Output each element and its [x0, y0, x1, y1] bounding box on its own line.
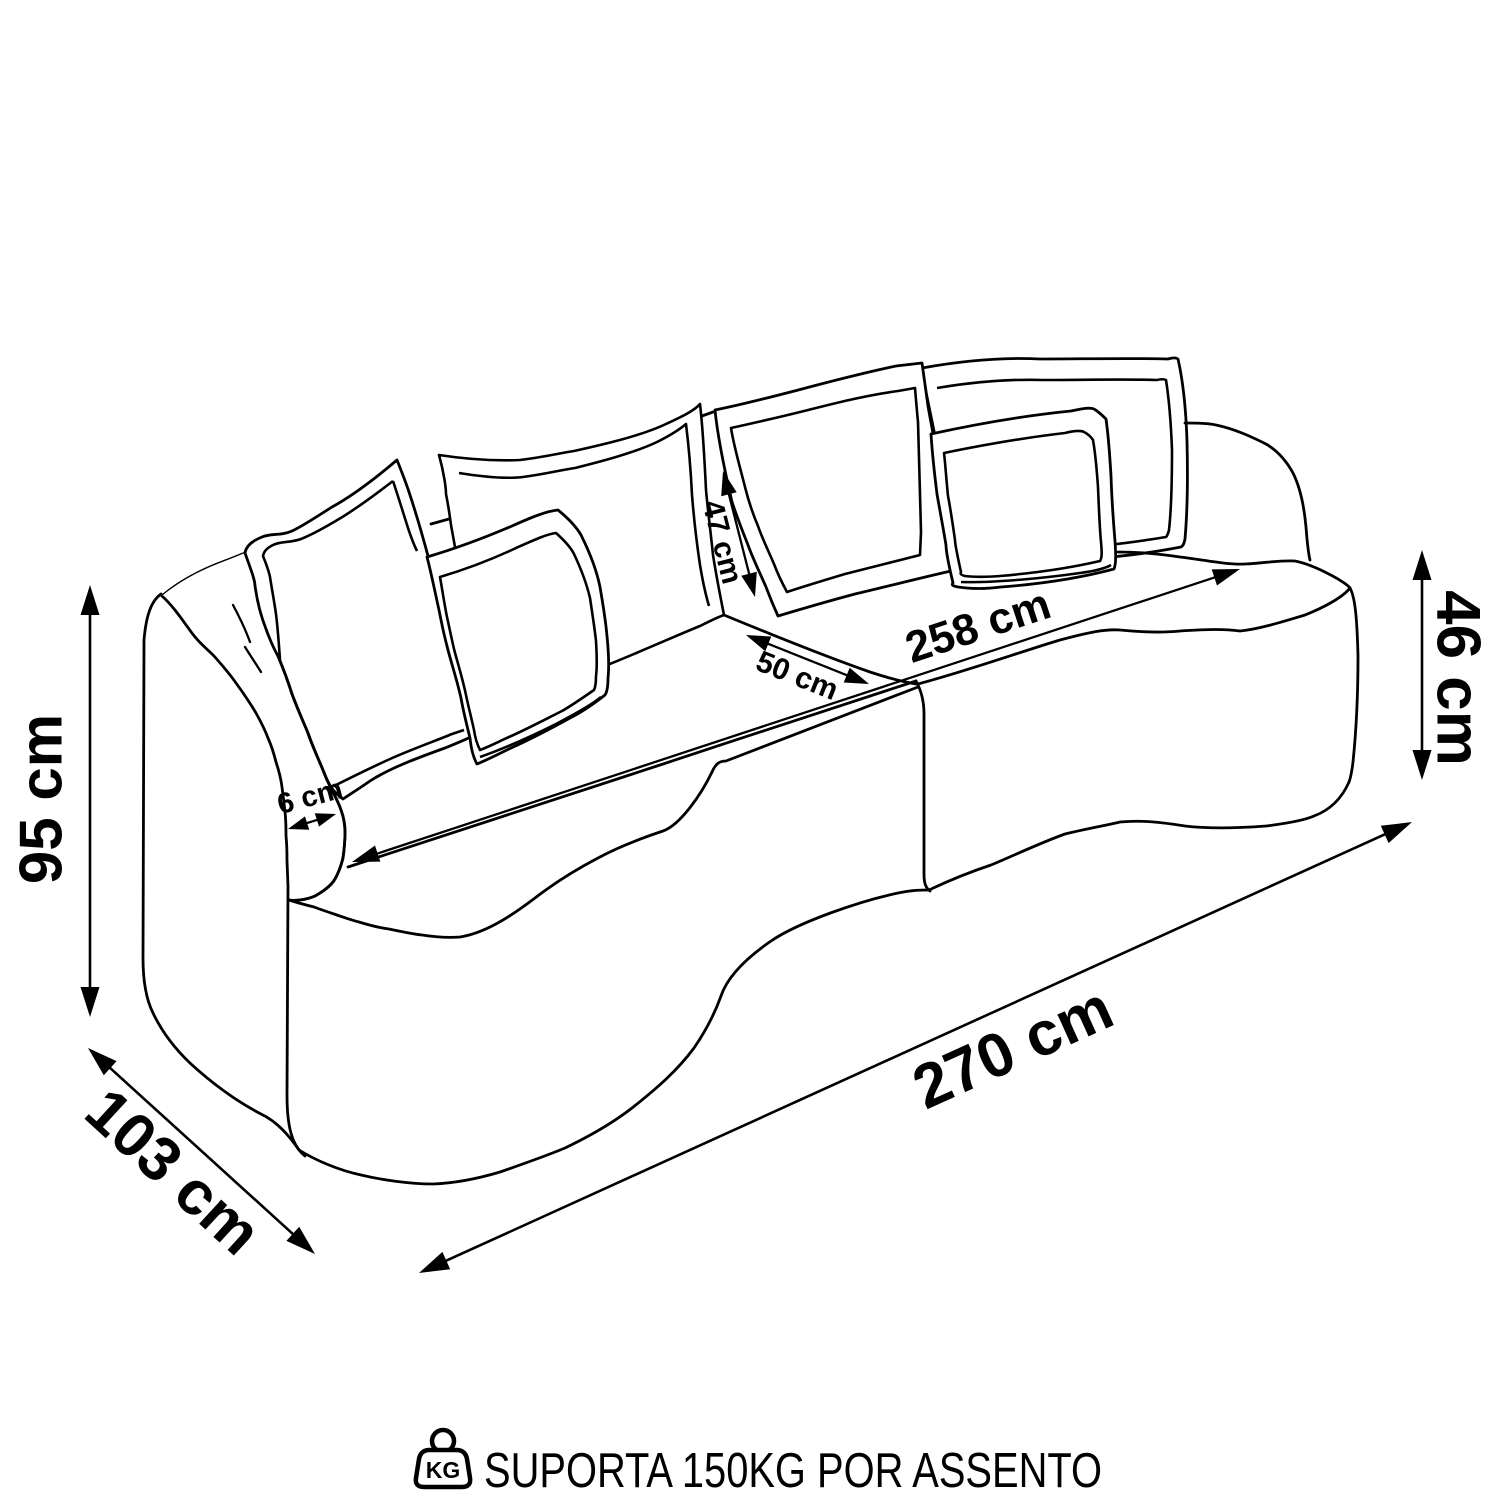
svg-text:SUPORTA 150KG POR ASSENTO: SUPORTA 150KG POR ASSENTO	[484, 1444, 1102, 1498]
svg-text:46 cm: 46 cm	[1424, 590, 1493, 766]
svg-text:KG: KG	[426, 1457, 461, 1483]
svg-text:95 cm: 95 cm	[8, 714, 75, 884]
